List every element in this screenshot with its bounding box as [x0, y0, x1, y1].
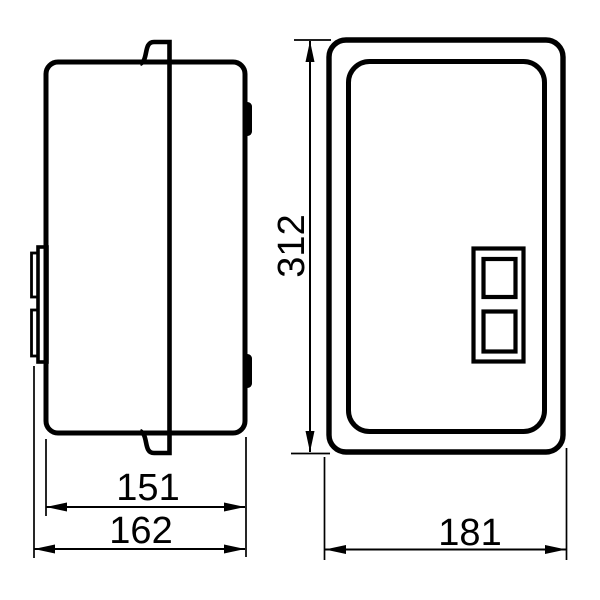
- technical-drawing-canvas: 151 162 312 181: [0, 0, 600, 600]
- side-view-rear-detail-lower-bar: [32, 310, 39, 356]
- dim-312-arrow-top: [306, 41, 315, 62]
- dimension-312: 312: [271, 40, 331, 454]
- dim-151-arrow-left: [46, 503, 67, 512]
- dimension-181: 181: [325, 448, 567, 560]
- dim-151-arrow-right: [224, 503, 245, 512]
- side-view-body-outline: [46, 62, 245, 433]
- side-view-cover-seam-and-tabs: [140, 42, 170, 453]
- dimension-162: 162: [34, 366, 245, 558]
- dim-312-label: 312: [271, 214, 313, 277]
- side-view-rear-detail-upper-bar: [32, 253, 39, 297]
- side-view: [32, 42, 253, 453]
- side-view-latch-bump-top: [243, 102, 252, 136]
- dim-181-arrow-right: [545, 545, 566, 554]
- dim-162-label: 162: [109, 510, 172, 552]
- dim-181-arrow-left: [325, 545, 346, 554]
- front-view-case-outline: [329, 40, 563, 452]
- front-view: [329, 40, 563, 452]
- front-view-window-top: [484, 259, 516, 297]
- dim-151-label: 151: [116, 467, 179, 509]
- side-view-latch-bump-bottom: [243, 354, 252, 388]
- dim-162-arrow-left: [34, 545, 55, 554]
- dim-181-label: 181: [438, 512, 501, 554]
- dim-162-arrow-right: [224, 545, 245, 554]
- dim-312-arrow-bottom: [306, 431, 315, 452]
- front-view-window-bottom: [484, 312, 516, 352]
- enclosure-dimension-drawing: 151 162 312 181: [0, 0, 600, 600]
